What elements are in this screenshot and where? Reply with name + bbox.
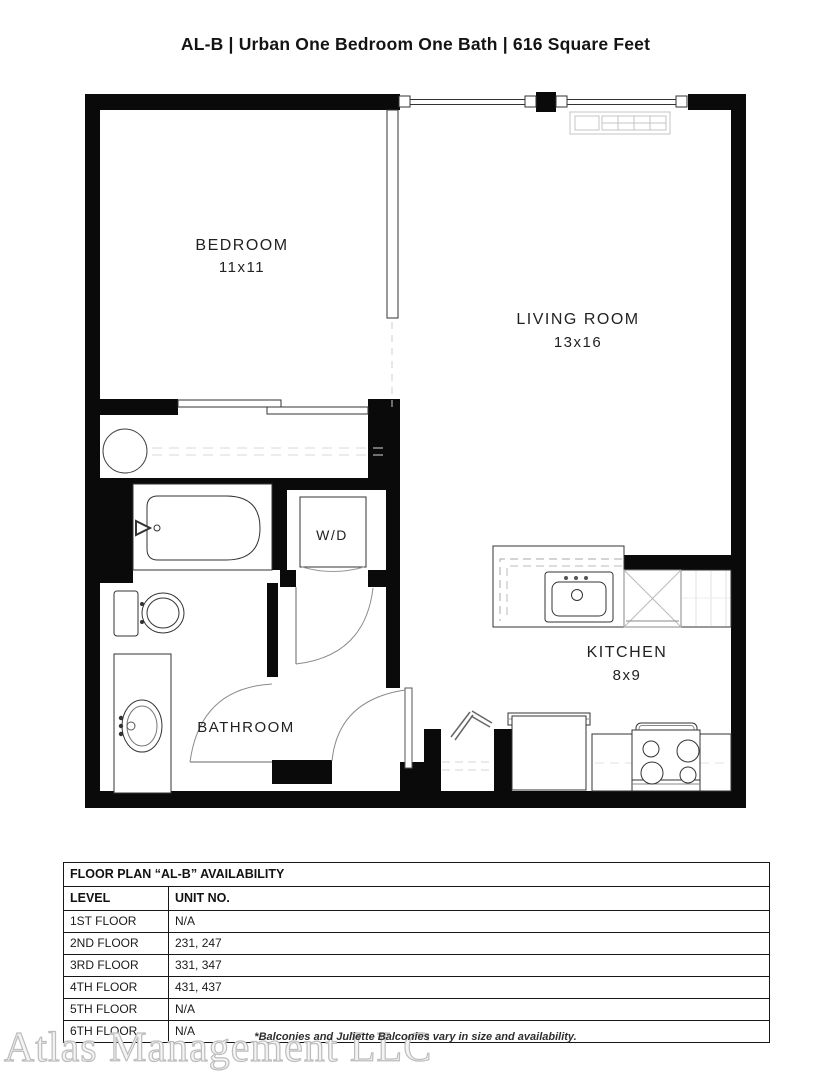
table-row: 4TH FLOOR 431, 437 [64,977,770,999]
level-cell: 3RD FLOOR [64,955,169,977]
washer-dryer-unit [296,497,373,664]
toilet [114,591,184,636]
level-cell: 1ST FLOOR [64,911,169,933]
kitchen-sink [545,572,613,622]
availability-table-header-row: LEVEL UNIT NO. [64,887,770,911]
closet-interior [103,429,390,473]
kitchen-label: KITCHEN [587,644,668,661]
kitchen-peninsula [493,546,624,627]
units-cell: N/A [169,999,770,1021]
entry-door [451,711,492,740]
entry-threshold [442,762,493,770]
availability-table-title: FLOOR PLAN “AL-B” AVAILABILITY [64,863,770,887]
floor-plan-page: AL-B | Urban One Bedroom One Bath | 616 … [0,0,831,1080]
footnote: *Balconies and Juliette Balconies vary i… [0,1031,831,1043]
table-row: 2ND FLOOR 231, 247 [64,933,770,955]
units-cell: N/A [169,911,770,933]
availability-table-title-row: FLOOR PLAN “AL-B” AVAILABILITY [64,863,770,887]
kitchen-dims-label: 8x9 [613,667,642,684]
tub-drain [154,525,160,531]
availability-table: FLOOR PLAN “AL-B” AVAILABILITY LEVEL UNI… [63,862,770,1043]
col-unit-no: UNIT NO. [169,887,770,911]
level-cell: 5TH FLOOR [64,999,169,1021]
living-room-dims-label: 13x16 [554,334,602,351]
water-heater [103,429,147,473]
units-cell: 231, 247 [169,933,770,955]
bedroom-dims-label: 11x11 [219,259,265,276]
wd-door-swing [296,588,373,664]
col-level: LEVEL [64,887,169,911]
kitchen-counter-right [624,570,731,627]
table-row: 3RD FLOOR 331, 347 [64,955,770,977]
level-cell: 2ND FLOOR [64,933,169,955]
living-room-label: LIVING ROOM [516,311,639,328]
units-cell: 431, 437 [169,977,770,999]
table-row: 5TH FLOOR N/A [64,999,770,1021]
bathroom-label: BATHROOM [197,719,295,736]
bathtub [133,484,272,570]
bedroom-partition-wall [387,110,398,407]
walls [85,92,746,808]
table-row: 1ST FLOOR N/A [64,911,770,933]
bedroom-label: BEDROOM [195,237,288,254]
vanity-sink [114,654,171,793]
wd-label: W/D [316,527,348,543]
hvac-unit [570,112,670,134]
hall-door [332,688,412,768]
refrigerator [508,713,590,790]
range-counter [592,723,731,791]
level-cell: 4TH FLOOR [64,977,169,999]
closet-sliding-doors [178,400,368,414]
units-cell: 331, 347 [169,955,770,977]
